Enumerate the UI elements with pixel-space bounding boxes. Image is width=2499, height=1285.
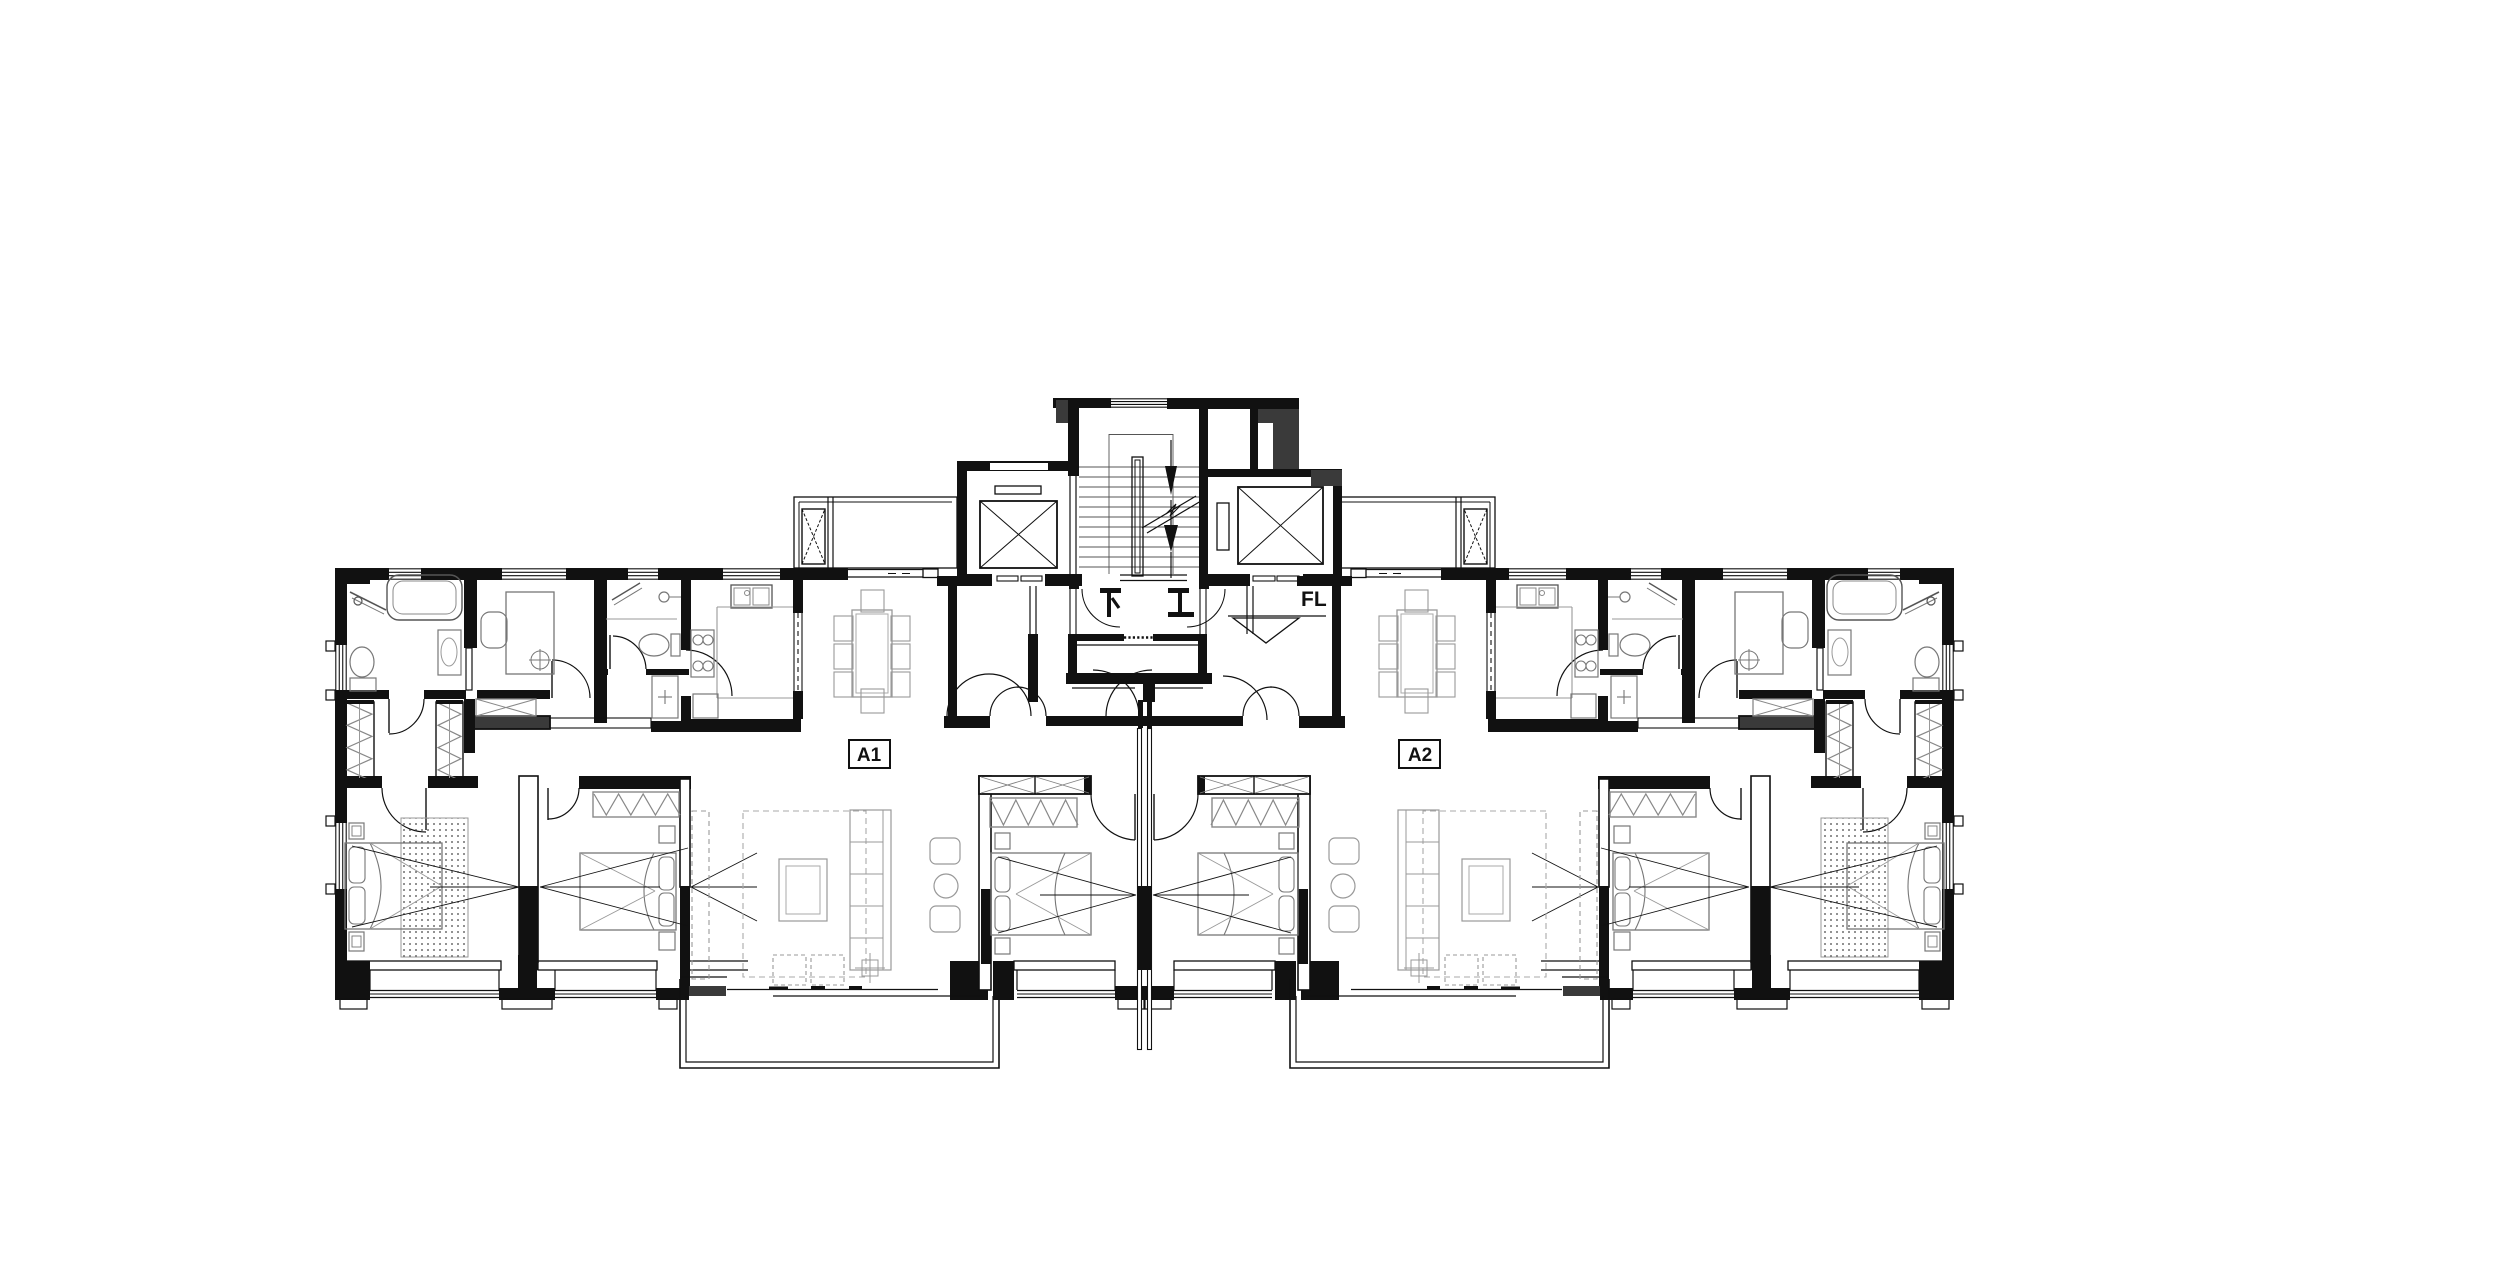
svg-text:A1: A1	[857, 745, 882, 766]
svg-text:A2: A2	[1408, 745, 1432, 766]
svg-text:FL: FL	[1301, 588, 1327, 611]
